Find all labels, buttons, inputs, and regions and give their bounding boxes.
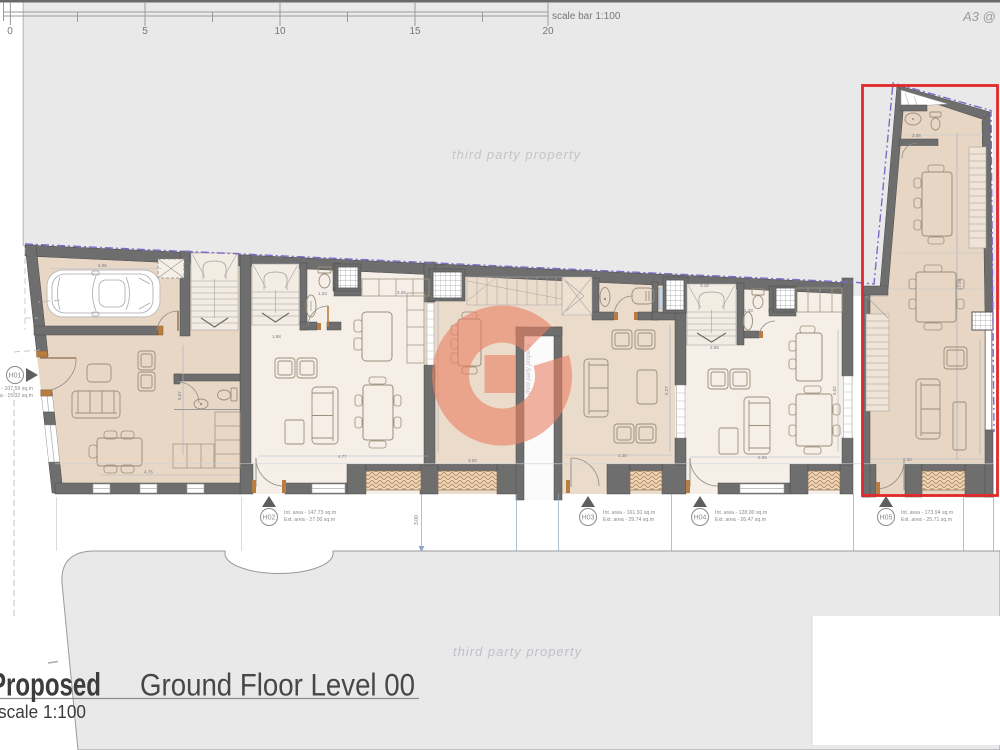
svg-text:scale 1:100: scale 1:100 bbox=[0, 701, 86, 722]
svg-text:Int. area - 128.00 sq.m: Int. area - 128.00 sq.m bbox=[715, 510, 767, 516]
svg-text:H04: H04 bbox=[694, 515, 707, 522]
svg-text:2.08: 2.08 bbox=[710, 345, 719, 350]
svg-text:third party property: third party property bbox=[453, 644, 583, 659]
svg-text:5.57: 5.57 bbox=[177, 391, 182, 400]
svg-text:15: 15 bbox=[409, 26, 421, 37]
svg-text:Ext. area - 27.00 sq.m: Ext. area - 27.00 sq.m bbox=[284, 517, 335, 523]
svg-text:3.26: 3.26 bbox=[397, 290, 406, 295]
svg-text:5.27: 5.27 bbox=[664, 386, 669, 395]
svg-text:H02: H02 bbox=[263, 515, 276, 522]
svg-text:3.00: 3.00 bbox=[414, 515, 420, 525]
svg-text:H05: H05 bbox=[880, 515, 893, 522]
svg-text:2.07: 2.07 bbox=[625, 280, 634, 285]
svg-text:5: 5 bbox=[142, 26, 148, 37]
svg-text:1.98: 1.98 bbox=[272, 334, 281, 339]
svg-text:a - 15.32 sq.m: a - 15.32 sq.m bbox=[0, 393, 33, 399]
svg-text:20: 20 bbox=[542, 26, 554, 37]
svg-text:4.77: 4.77 bbox=[338, 454, 347, 459]
svg-text:H03: H03 bbox=[582, 515, 595, 522]
svg-text:4.28: 4.28 bbox=[618, 453, 627, 458]
svg-text:Int. area - 161.91 sq.m: Int. area - 161.91 sq.m bbox=[603, 510, 655, 516]
svg-text:1.33: 1.33 bbox=[744, 308, 753, 313]
svg-text:3.00: 3.00 bbox=[468, 458, 477, 463]
svg-text:3.08: 3.08 bbox=[912, 133, 921, 138]
svg-text:5.02: 5.02 bbox=[832, 386, 837, 395]
svg-text:1.23: 1.23 bbox=[318, 291, 327, 296]
svg-text:5.06: 5.06 bbox=[98, 263, 107, 268]
svg-text:Proposed: Proposed bbox=[0, 667, 101, 703]
svg-text:Int. area - 173.94 sq.m: Int. area - 173.94 sq.m bbox=[901, 510, 953, 516]
svg-text:5.36: 5.36 bbox=[903, 457, 912, 462]
svg-text:Ext. area - 26.47 sq.m: Ext. area - 26.47 sq.m bbox=[715, 517, 766, 523]
svg-text:a - 107.59 sq.m: a - 107.59 sq.m bbox=[0, 386, 33, 392]
svg-text:scale bar 1:100: scale bar 1:100 bbox=[552, 11, 621, 22]
svg-text:H01: H01 bbox=[9, 373, 22, 380]
svg-text:Ext. area - 29.74 sq.m: Ext. area - 29.74 sq.m bbox=[603, 517, 654, 523]
svg-text:third party property: third party property bbox=[452, 147, 582, 162]
svg-text:6.96: 6.96 bbox=[758, 455, 767, 460]
svg-text:Ground Floor Level 00: Ground Floor Level 00 bbox=[140, 667, 415, 703]
svg-text:10: 10 bbox=[274, 26, 286, 37]
svg-text:A3 @: A3 @ bbox=[962, 9, 996, 24]
svg-text:Ext. area - 25.71 sq.m: Ext. area - 25.71 sq.m bbox=[901, 517, 952, 523]
svg-text:Int. area - 147.73 sq.m: Int. area - 147.73 sq.m bbox=[284, 510, 336, 516]
svg-text:0: 0 bbox=[7, 26, 13, 37]
svg-text:4.76: 4.76 bbox=[144, 470, 153, 475]
svg-text:3.18: 3.18 bbox=[700, 283, 709, 288]
